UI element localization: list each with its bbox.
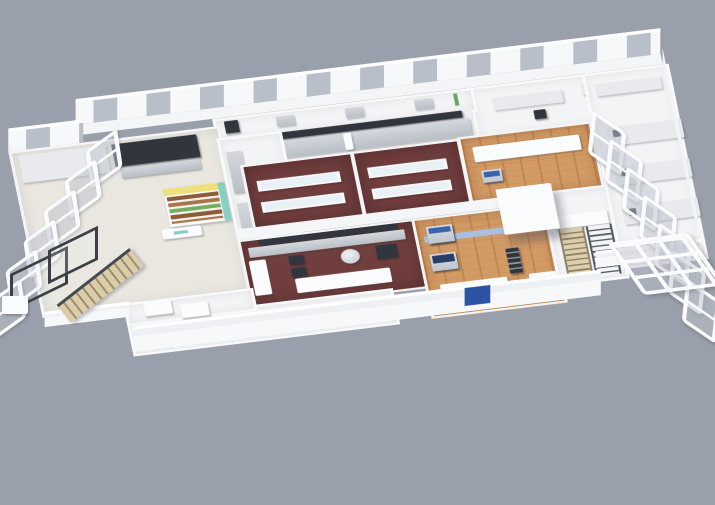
tan-staircase: [57, 248, 144, 323]
processing-machine: [426, 224, 455, 244]
storage-shelf: [505, 247, 523, 274]
teal-logo-mark: [174, 230, 188, 235]
packing-machine: [430, 252, 459, 272]
annex-machine: [481, 169, 503, 184]
corridor-appliance: [414, 98, 434, 110]
retail-shelf: [163, 182, 232, 227]
shelf-goods-rows: [167, 191, 224, 224]
cooking-kettle: [339, 248, 361, 265]
packing-machine: [430, 252, 459, 272]
packing-machine: [430, 252, 459, 272]
fryer-bank: [375, 243, 399, 259]
corridor-appliance: [275, 115, 295, 127]
outdoor-stair: [50, 246, 160, 316]
service-counter: [261, 192, 346, 213]
processing-machine: [426, 224, 455, 244]
service-counter: [256, 171, 341, 192]
service-counter: [371, 179, 452, 199]
processing-machine: [426, 224, 455, 244]
annex-bench: [472, 134, 582, 162]
service-counter: [367, 158, 448, 178]
instrument-bench: [492, 90, 564, 110]
annex-machine: [481, 169, 503, 184]
logo-counter: [161, 225, 203, 240]
instrument-unit: [533, 109, 547, 120]
cold-room-block: [495, 183, 560, 235]
corridor-appliance: [345, 106, 365, 118]
right-window-panels: [580, 112, 715, 342]
terrace-planter: [2, 296, 28, 314]
annex-machine: [481, 169, 503, 184]
processing-machine: [426, 224, 455, 244]
cook-line-divider: [343, 133, 354, 151]
render-stage: [0, 0, 715, 505]
prep-counter: [120, 159, 201, 178]
corner-window-grid: [630, 232, 702, 296]
plant-accent: [453, 93, 459, 106]
corridor-unit: [224, 120, 240, 134]
shelf-yellow-top: [163, 182, 226, 196]
facade-blue-stripe: [465, 285, 491, 308]
